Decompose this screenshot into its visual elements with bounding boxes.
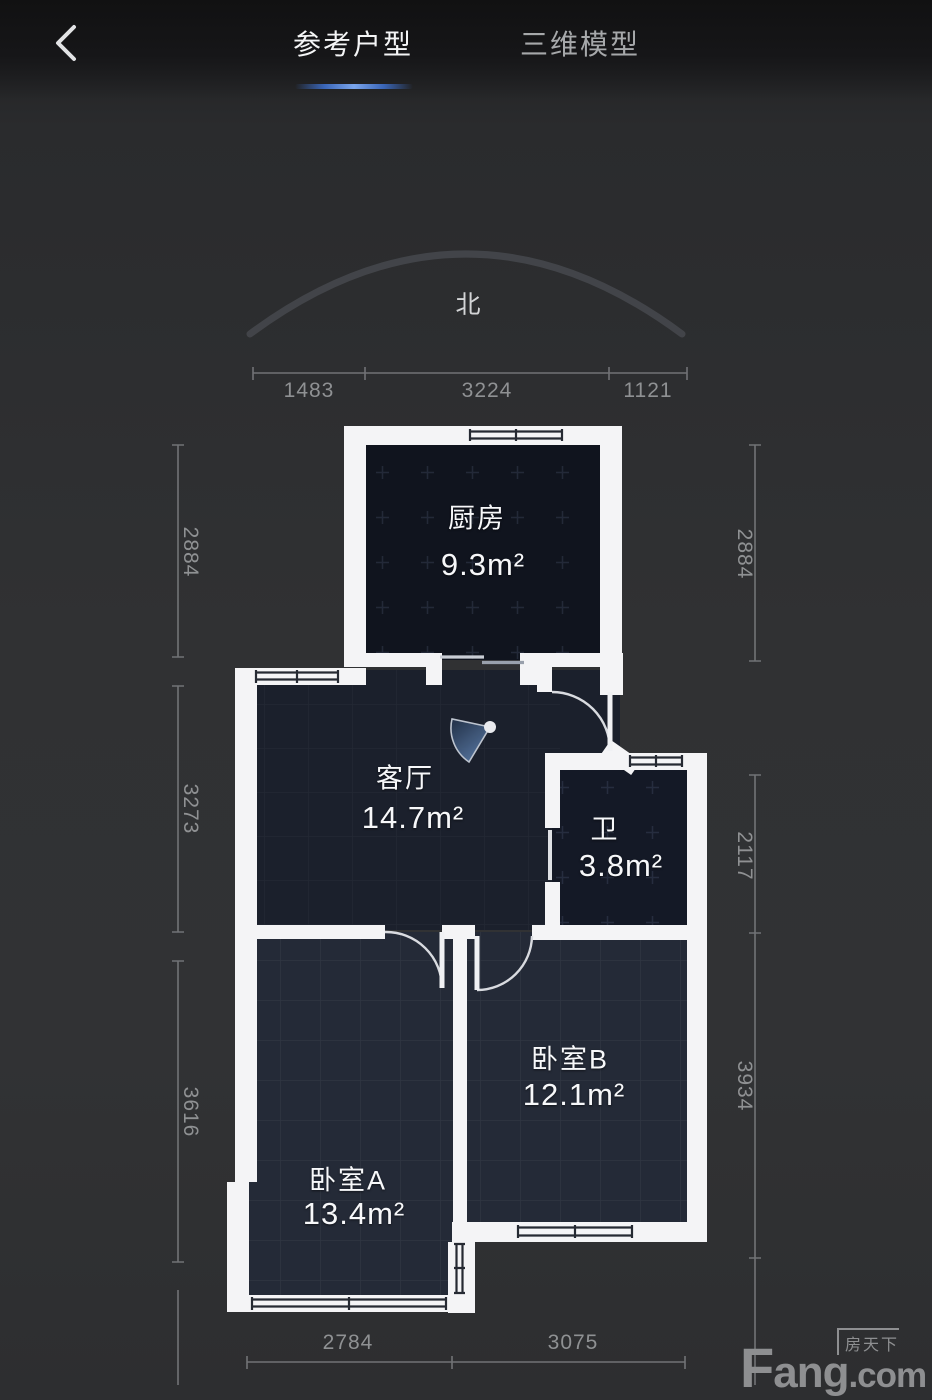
- tab-reference-layout[interactable]: 参考户型: [293, 23, 413, 63]
- dim-top-3: 1121: [623, 379, 672, 403]
- fang-letters-ang: ang: [773, 1351, 848, 1395]
- kitchen-name: 厨房: [448, 497, 506, 536]
- dim-bottom-1: 2784: [323, 1331, 374, 1355]
- bath-area: 3.8m²: [579, 848, 663, 884]
- fang-watermark: 房天下 F ang .com: [740, 1328, 932, 1398]
- bath-name: 卫: [591, 808, 620, 847]
- active-tab-indicator: [295, 84, 413, 89]
- living-area: 14.7m²: [362, 800, 464, 836]
- floorplan-screen: 参考户型 三维模型 北 厨房 9.3m² 客厅 14.7m² 卫 3.8m² 卧…: [0, 0, 932, 1400]
- dim-left-3: 3616: [178, 1087, 202, 1138]
- dim-right-2: 2117: [732, 831, 756, 880]
- dim-right-3: 3934: [732, 1061, 756, 1112]
- tab-3d-model[interactable]: 三维模型: [520, 23, 640, 63]
- dim-top-1: 1483: [284, 379, 335, 403]
- north-label: 北: [455, 285, 480, 321]
- fang-letter-f: F: [740, 1340, 773, 1396]
- bedroomA-name: 卧室A: [309, 1159, 387, 1198]
- dim-top-2: 3224: [462, 379, 513, 403]
- dim-right-1: 2884: [732, 529, 756, 580]
- floorplan-svg: [0, 0, 932, 1400]
- bedroomB-name: 卧室B: [531, 1038, 609, 1077]
- bedroomA-area: 13.4m²: [303, 1196, 405, 1232]
- header-bar: 参考户型 三维模型: [0, 0, 932, 100]
- door-hinge-dot: [484, 721, 496, 733]
- dim-bottom-2: 3075: [548, 1331, 599, 1355]
- kitchen-area: 9.3m²: [441, 547, 525, 583]
- living-name: 客厅: [376, 757, 434, 796]
- back-button[interactable]: [48, 22, 84, 64]
- fang-dot-com: .com: [848, 1358, 926, 1393]
- dim-left-1: 2884: [178, 527, 202, 578]
- chevron-left-icon: [48, 22, 84, 64]
- fang-en-label: F ang .com: [740, 1340, 926, 1396]
- bedroomB-area: 12.1m²: [523, 1077, 625, 1113]
- dim-left-2: 3273: [178, 784, 202, 835]
